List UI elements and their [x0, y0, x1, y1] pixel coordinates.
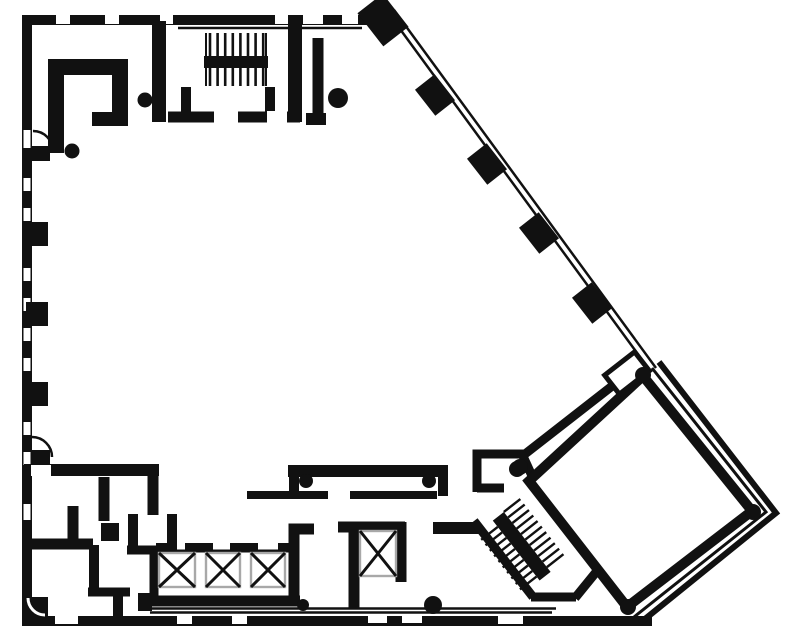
window-gap: [232, 615, 247, 624]
window-gap: [311, 15, 323, 24]
facade-column: [467, 143, 507, 184]
door-gap: [214, 111, 238, 123]
door-pivot-dot: [424, 596, 442, 614]
window-gap: [368, 615, 387, 623]
window-gap: [105, 15, 119, 24]
curtain-wall-glass-line: [394, 10, 656, 368]
window-gap: [342, 15, 358, 24]
stair-landing-bar: [204, 56, 268, 68]
window-gap: [24, 358, 31, 371]
left-wall-column: [26, 222, 48, 246]
elevator-door-jamb: [230, 543, 258, 552]
service-elevator-shaft: [360, 531, 396, 576]
wall-block: [101, 523, 119, 541]
window-gap: [498, 615, 523, 624]
window-gap: [56, 15, 70, 24]
curtain-wall-glass-line: [389, 14, 651, 372]
column-dot: [745, 504, 761, 520]
wall-block: [138, 593, 152, 611]
column-dot: [635, 367, 651, 383]
window-gap: [24, 504, 31, 520]
door-leaf: [32, 146, 50, 161]
door-pivot-dot: [65, 144, 80, 159]
door-gap: [267, 111, 287, 123]
column-dot: [620, 599, 636, 615]
elevator-door-jamb: [156, 543, 168, 552]
door-leaf: [31, 450, 50, 464]
cased-opening: [31, 465, 51, 476]
elevator-shaft: [251, 553, 285, 587]
facade-column: [519, 212, 559, 253]
window-gap: [24, 422, 31, 435]
stair-treads-upper-flight: [210, 33, 263, 56]
facade-column: [572, 282, 612, 323]
floor-plan-page: [0, 0, 787, 641]
window-gap: [24, 178, 31, 191]
door-pivot-dot: [299, 474, 313, 488]
upper-left-room-partition: [56, 67, 120, 153]
elevator-door-jamb: [185, 543, 213, 552]
stair-treads-lower-flight: [210, 68, 263, 86]
window-gap: [303, 15, 311, 24]
door-pivot-dot: [422, 474, 436, 488]
door-pivot-dot: [297, 599, 309, 611]
window-gap: [24, 268, 31, 281]
stair2-end-wall: [575, 571, 597, 598]
elevator-shaft: [159, 553, 195, 587]
column-dot: [512, 459, 528, 475]
floor-plan-drawing: [0, 0, 787, 641]
window-gap: [55, 615, 78, 624]
window-gap: [275, 15, 288, 24]
window-gap: [24, 208, 31, 221]
door-pivot-dot: [328, 88, 348, 108]
elevator-bank-right-wall: [294, 529, 314, 601]
left-wall-column: [26, 382, 48, 406]
window-gap: [177, 615, 192, 624]
rotated-square-room: [529, 376, 752, 607]
elevator-shaft: [206, 553, 240, 587]
facade-column: [415, 74, 455, 115]
door-pivot-dot: [138, 93, 153, 108]
window-gap: [24, 452, 31, 465]
left-wall-column: [26, 302, 48, 326]
window-gap: [24, 328, 31, 341]
window-gap: [24, 130, 31, 148]
window-gap: [402, 615, 422, 623]
